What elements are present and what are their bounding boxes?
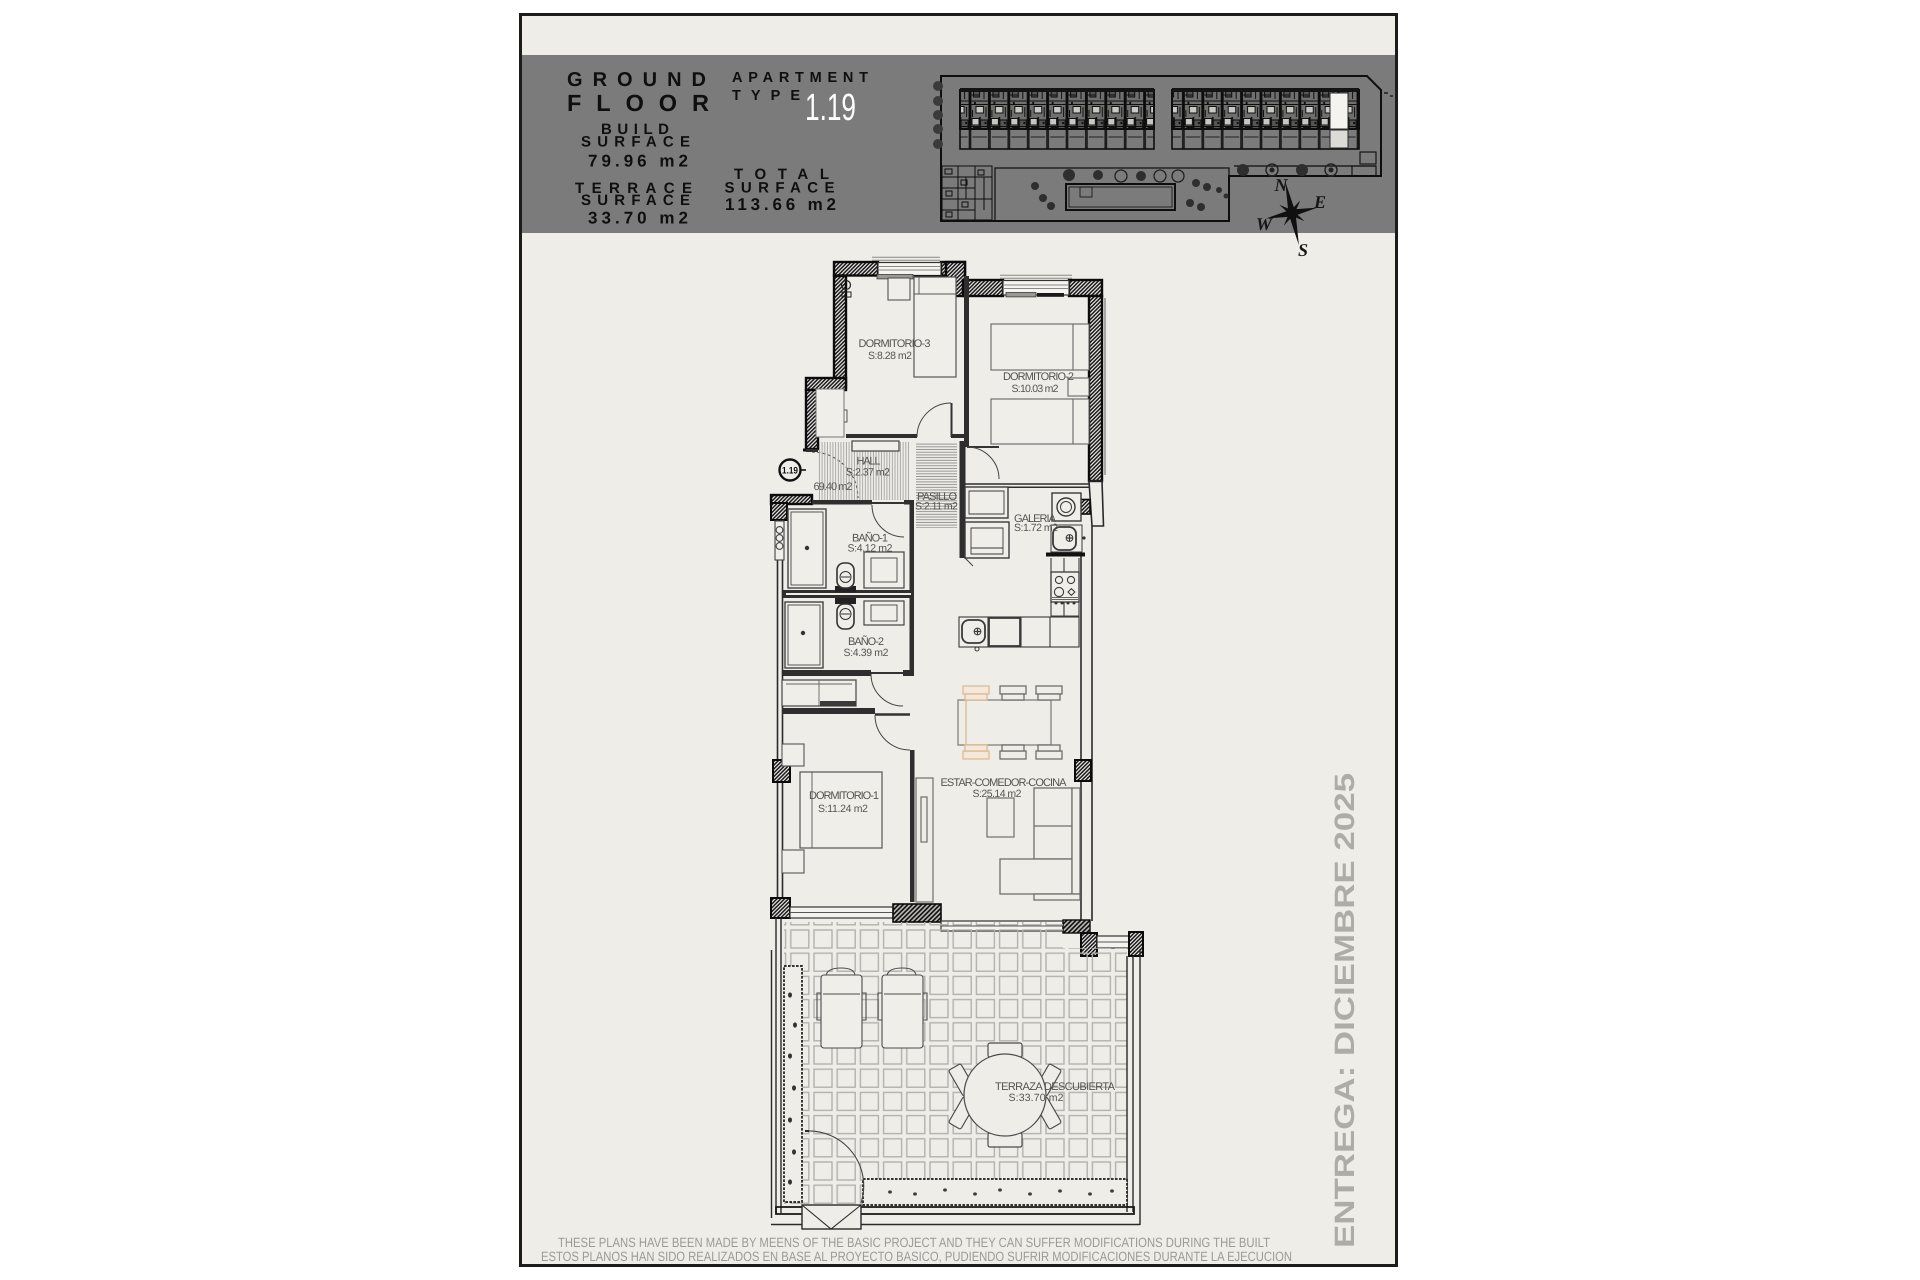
svg-text:DORMITORIO-2: DORMITORIO-2 <box>1003 371 1074 383</box>
svg-text:S:4.12 m2: S:4.12 m2 <box>848 543 893 555</box>
svg-text:ENTREGA: DICIEMBRE 2025: ENTREGA: DICIEMBRE 2025 <box>1329 773 1360 1248</box>
svg-text:DORMITORIO-1: DORMITORIO-1 <box>809 790 879 802</box>
svg-text:S:1.72 m2: S:1.72 m2 <box>1014 522 1058 534</box>
svg-text:69.40 m2: 69.40 m2 <box>814 481 853 493</box>
svg-text:SURFACE: SURFACE <box>581 192 690 209</box>
svg-text:S: S <box>1298 240 1308 260</box>
svg-text:113.66 m2: 113.66 m2 <box>725 195 836 214</box>
svg-text:W: W <box>1256 214 1274 234</box>
svg-text:S:2.37 m2: S:2.37 m2 <box>846 467 890 479</box>
svg-text:S:10.03 m2: S:10.03 m2 <box>1012 383 1059 395</box>
svg-text:ESTOS PLANOS HAN SIDO REALIZAD: ESTOS PLANOS HAN SIDO REALIZADOS EN BASE… <box>541 1249 1292 1264</box>
svg-text:S:11.24 m2: S:11.24 m2 <box>818 803 868 815</box>
svg-text:S:2.11 m2: S:2.11 m2 <box>915 501 958 513</box>
svg-text:N: N <box>1274 175 1289 195</box>
svg-text:S:8.28 m2: S:8.28 m2 <box>868 350 912 362</box>
svg-text:SURFACE: SURFACE <box>581 134 690 151</box>
svg-text:1.19: 1.19 <box>805 87 856 129</box>
svg-text:APARTMENT: APARTMENT <box>732 70 868 86</box>
svg-text:S:33.70 m2: S:33.70 m2 <box>1009 1092 1064 1104</box>
svg-text:79.96 m2: 79.96 m2 <box>588 152 688 171</box>
svg-text:33.70 m2: 33.70 m2 <box>588 209 688 228</box>
svg-text:E: E <box>1313 192 1326 212</box>
svg-text:S:25.14 m2: S:25.14 m2 <box>973 788 1022 800</box>
svg-text:SURFACE: SURFACE <box>725 180 835 197</box>
svg-text:DORMITORIO-3: DORMITORIO-3 <box>859 338 931 350</box>
svg-text:1.19: 1.19 <box>782 466 798 477</box>
svg-text:S:4.39 m2: S:4.39 m2 <box>844 647 889 659</box>
svg-text:THESE PLANS HAVE BEEN MADE BY: THESE PLANS HAVE BEEN MADE BY MEENS OF T… <box>558 1235 1270 1250</box>
